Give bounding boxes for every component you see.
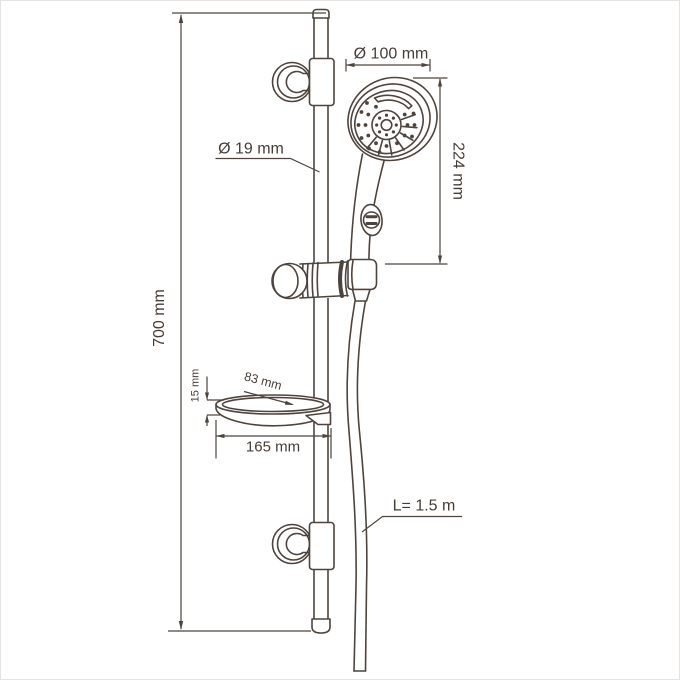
dimension-head-diameter: Ø 100 mm	[346, 46, 430, 72]
shower-head	[336, 65, 449, 173]
dish-width-label: 165 mm	[246, 439, 300, 456]
technical-drawing-page: 700 mm Ø 19 mm Ø 100 mm 224 mm 15 mm	[0, 0, 680, 680]
hose-length-label: L= 1.5 m	[393, 498, 456, 515]
shower-set-technical-drawing: 700 mm Ø 19 mm Ø 100 mm 224 mm 15 mm	[1, 1, 680, 681]
dimension-bar-diameter: Ø 19 mm	[216, 141, 320, 173]
bar-height-label: 700 mm	[151, 289, 168, 347]
dimension-hose-length: L= 1.5 m	[362, 498, 462, 533]
bottom-wall-bracket	[273, 523, 335, 570]
slider-holder	[272, 260, 377, 302]
shower-hose	[347, 301, 367, 671]
head-diameter-label: Ø 100 mm	[354, 46, 429, 63]
dimension-dish-height: 15 mm	[190, 369, 225, 426]
top-wall-bracket	[273, 59, 335, 106]
dish-height-label: 15 mm	[190, 369, 202, 403]
hand-shower-length-label: 224 mm	[450, 142, 467, 200]
mode-switch-button	[359, 203, 383, 236]
dimension-bar-height: 700 mm	[151, 13, 326, 631]
bar-diameter-label: Ø 19 mm	[218, 141, 284, 158]
dish-depth-label: 83 mm	[243, 369, 284, 392]
